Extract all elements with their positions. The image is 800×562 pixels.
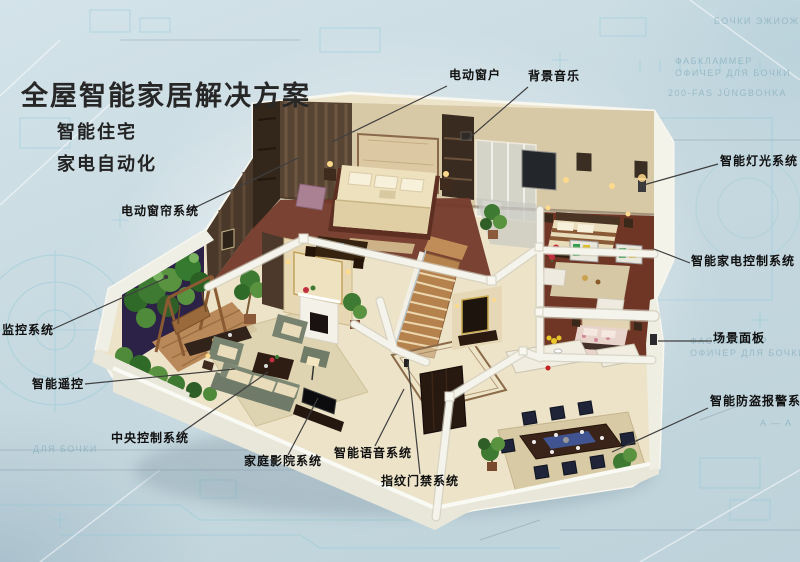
smart-home-poster: 全屋智能家居解决方案 智能住宅 家电自动化 电动窗户 背景音乐 智能灯光系统 智… xyxy=(0,0,800,562)
callout-label-home-theater: 家庭影院系统 xyxy=(244,452,322,469)
callout-label-central-control: 中央控制系统 xyxy=(111,429,189,446)
callout-label-motorized-window: 电动窗户 xyxy=(449,66,501,83)
page-title: 全屋智能家居解决方案 xyxy=(21,74,311,113)
subtitle-line-1: 智能住宅 xyxy=(57,116,157,148)
callout-label-voice-system: 智能语音系统 xyxy=(334,444,412,461)
callout-label-appliance-control: 智能家电控制系统 xyxy=(691,252,795,269)
callout-label-smart-remote: 智能遥控 xyxy=(32,375,84,392)
callout-label-scene-panel: 场景面板 xyxy=(713,329,765,346)
callout-label-monitoring-system: 监控系统 xyxy=(2,321,54,338)
callout-label-smart-lighting: 智能灯光系统 xyxy=(720,152,798,169)
callout-label-burglar-alarm: 智能防盗报警系统 xyxy=(710,392,800,409)
callout-label-motorized-curtain: 电动窗帘系统 xyxy=(121,202,199,219)
page-subtitle: 智能住宅 家电自动化 xyxy=(57,116,157,181)
subtitle-line-2: 家电自动化 xyxy=(57,148,157,180)
callout-label-background-music: 背景音乐 xyxy=(528,67,580,84)
callout-label-fingerprint-access: 指纹门禁系统 xyxy=(381,472,459,489)
